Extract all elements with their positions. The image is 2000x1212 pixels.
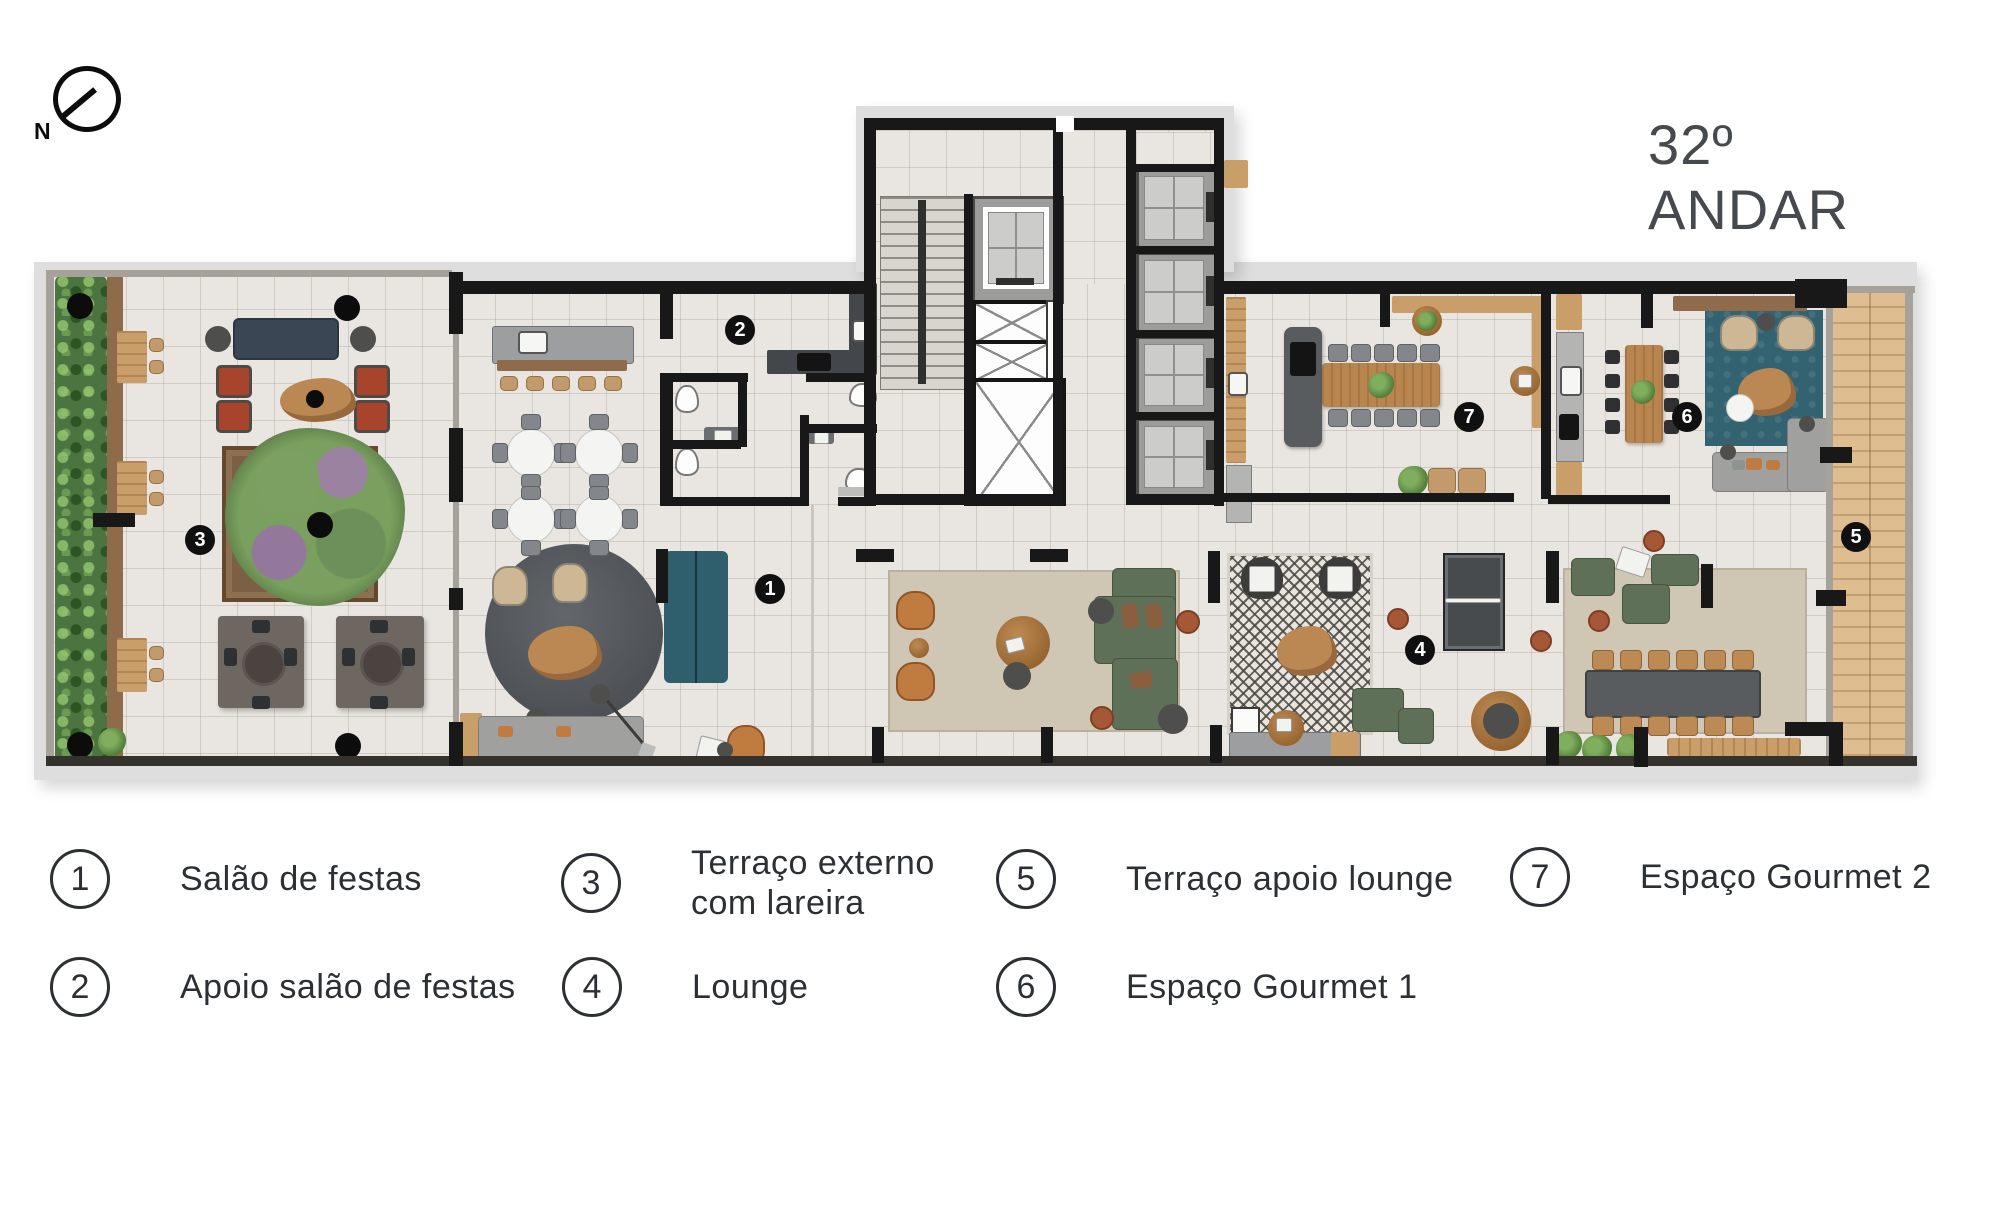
g2-chair-b3 bbox=[1374, 409, 1394, 427]
wall-stub-gourmet1 bbox=[1641, 290, 1653, 328]
g1-cushion-2 bbox=[1766, 460, 1780, 470]
legend-label: Terraço apoio lounge bbox=[1126, 859, 1454, 899]
wall-vestibule-bottom bbox=[1130, 164, 1224, 172]
wall-stub-3 bbox=[872, 727, 884, 763]
plan-marker-lounge: 4 bbox=[1405, 635, 1435, 665]
ld-chair-b4 bbox=[1676, 716, 1698, 736]
wall-bath-top-2 bbox=[806, 373, 876, 382]
g1-side-table bbox=[1757, 313, 1775, 331]
legend-item-lounge: 4 Lounge bbox=[562, 957, 808, 1017]
g1-armchair-1 bbox=[1720, 315, 1758, 351]
shaft-x-big bbox=[972, 378, 1066, 506]
g1-sink bbox=[1560, 366, 1582, 396]
bar-stool-3 bbox=[552, 376, 570, 391]
tower-door-gap bbox=[1056, 116, 1074, 132]
terrace-pouf-1 bbox=[205, 326, 231, 352]
lounge-green-bench-1 bbox=[1352, 688, 1404, 732]
chevron-coffee-table bbox=[1277, 626, 1337, 676]
g1-white-table bbox=[1726, 394, 1754, 422]
wall-bath-h3 bbox=[803, 424, 877, 433]
lounge-pouf-terra-2 bbox=[1090, 706, 1114, 730]
legend-item-terraco-externo: 3 Terraço externo com lareira bbox=[561, 843, 935, 923]
apoio-cooktop bbox=[797, 353, 831, 371]
g2-chair-t4 bbox=[1397, 344, 1417, 362]
pouf-terra-5 bbox=[1588, 610, 1610, 632]
wall-stub-gourmet2 bbox=[1380, 289, 1390, 327]
lounge-pouf-dark-2 bbox=[1158, 704, 1188, 734]
wall-deck-corner-2 bbox=[1829, 722, 1843, 766]
wall-stub-8 bbox=[1546, 727, 1559, 765]
legend-number-circle: 3 bbox=[561, 853, 621, 913]
plan-marker-terraco-externo: 3 bbox=[185, 525, 215, 555]
wall-bath-top-1 bbox=[660, 373, 748, 382]
elevator-1-cab bbox=[1144, 176, 1204, 240]
wall-ts-stub-2 bbox=[449, 428, 463, 502]
bar-stool-1 bbox=[500, 376, 518, 391]
wall-deck-mid bbox=[1820, 447, 1852, 463]
ping-pong-net bbox=[1445, 598, 1501, 603]
mat1-chair-n bbox=[252, 620, 270, 633]
legend-number-circle: 1 bbox=[50, 849, 110, 909]
elevator-2-door bbox=[1206, 276, 1214, 306]
g1-cooktop bbox=[1559, 414, 1579, 440]
wall-gourmet1-bottom bbox=[1548, 495, 1670, 504]
ld-chair-b3 bbox=[1648, 716, 1670, 736]
g2-stool-2 bbox=[1458, 468, 1486, 494]
wall-tower-right bbox=[1214, 118, 1224, 506]
wall-tower-top-left bbox=[864, 118, 1056, 130]
wall-stub-5 bbox=[1208, 551, 1220, 603]
wall-ts-stub-4 bbox=[449, 722, 463, 766]
elevator-4-door bbox=[1206, 440, 1214, 470]
wall-stair-bottom bbox=[864, 494, 1063, 505]
plan-marker-terraco-apoio: 5 bbox=[1841, 522, 1871, 552]
stair-rail bbox=[918, 200, 926, 384]
terrace-firepit-dot bbox=[306, 390, 324, 408]
floor-lamp-head bbox=[590, 684, 610, 704]
terrace-armchair-1 bbox=[216, 365, 252, 398]
floor-joint-line bbox=[811, 505, 814, 758]
ld-chair-t3 bbox=[1648, 650, 1670, 670]
ld-chair-t6 bbox=[1732, 650, 1754, 670]
g2-round-note bbox=[1518, 374, 1532, 388]
bar-wood-front bbox=[497, 360, 627, 371]
g2-chair-t3 bbox=[1374, 344, 1394, 362]
mat1-chair-w bbox=[224, 648, 237, 666]
wall-elev-sep-2 bbox=[1130, 330, 1224, 338]
sideboard-wood bbox=[1331, 732, 1359, 758]
mat1-chair-s bbox=[252, 696, 270, 709]
floorplan-page: N 32º ANDAR 1 2 3 4 5 6 7 1 Salão de fes… bbox=[0, 0, 2000, 1212]
wall-elev-bottom bbox=[1126, 494, 1224, 505]
wall-apoio-divider bbox=[660, 281, 673, 339]
bt4-chair-w bbox=[560, 509, 576, 529]
mat2-chair-s bbox=[370, 696, 388, 709]
tree-trunk bbox=[307, 512, 333, 538]
legend-item-terraco-apoio: 5 Terraço apoio lounge bbox=[996, 849, 1454, 909]
toilet-2 bbox=[675, 448, 699, 476]
bt3-chair-s bbox=[521, 540, 541, 556]
g2-chair-b5 bbox=[1420, 409, 1440, 427]
bar-stool-2 bbox=[526, 376, 544, 391]
elevator-4-cab bbox=[1144, 426, 1204, 488]
terrace-bench-1 bbox=[117, 331, 147, 383]
mat1-table bbox=[242, 642, 286, 686]
wall-gourmet2-bottom bbox=[1224, 493, 1514, 502]
wall-stub-daybed bbox=[656, 549, 668, 603]
bt1-chair-n bbox=[521, 414, 541, 430]
bt4-chair-e bbox=[622, 509, 638, 529]
bt4-chair-n bbox=[589, 486, 609, 500]
plan-marker-salao-de-festas: 1 bbox=[755, 574, 785, 604]
g1-chair-l1 bbox=[1605, 350, 1620, 364]
wall-elev-sep-3 bbox=[1130, 412, 1224, 420]
green-pouf-1 bbox=[1571, 558, 1615, 596]
g1-chair-l2 bbox=[1605, 374, 1620, 388]
bath-mat bbox=[838, 487, 866, 496]
edge-deck-left bbox=[1826, 288, 1833, 764]
elevator-1-door bbox=[1206, 192, 1214, 222]
toilet-1 bbox=[675, 385, 699, 413]
legend-item-espaco-gourmet-1: 6 Espaço Gourmet 1 bbox=[996, 957, 1417, 1017]
lounge-cushion-2 bbox=[1144, 603, 1163, 629]
wall-bath-h2 bbox=[663, 440, 741, 449]
duct-box bbox=[1224, 160, 1248, 188]
legend-label: Salão de festas bbox=[180, 859, 422, 899]
pouf-terra-4 bbox=[1643, 530, 1665, 552]
wicker-cushion-2 bbox=[1327, 566, 1353, 592]
wall-stub-2 bbox=[1030, 549, 1068, 562]
rug-armchair-1 bbox=[492, 566, 528, 606]
legend-number-circle: 6 bbox=[996, 957, 1056, 1017]
sofa-pillow-1 bbox=[498, 726, 513, 737]
round-dining-table bbox=[1483, 703, 1519, 739]
terrace-sofa bbox=[233, 318, 339, 360]
lounge-pouf-terra-3 bbox=[1387, 608, 1409, 630]
ld-chair-t5 bbox=[1704, 650, 1726, 670]
terrace-pouf-2 bbox=[350, 326, 376, 352]
elevator-3-cab bbox=[1144, 344, 1204, 406]
sofa-pillow-2 bbox=[556, 726, 571, 737]
terrace-column-1 bbox=[67, 293, 93, 319]
ld-chair-b1 bbox=[1592, 716, 1614, 736]
lounge-cushion-1 bbox=[1120, 603, 1139, 629]
legend-number-circle: 4 bbox=[562, 957, 622, 1017]
bt2-chair-n bbox=[589, 414, 609, 430]
wall-stub-4 bbox=[1041, 727, 1053, 763]
wall-bath-bottom-2 bbox=[838, 497, 876, 506]
wall-tower-left bbox=[864, 118, 876, 506]
legend-number-circle: 2 bbox=[50, 957, 110, 1017]
bar-sink bbox=[518, 331, 548, 354]
g2-counter-sink bbox=[1228, 372, 1248, 396]
terrace-bench-2 bbox=[117, 461, 147, 515]
lounge-cushion-3 bbox=[1129, 671, 1153, 690]
legend-label: Espaço Gourmet 2 bbox=[1640, 857, 1931, 897]
lounge-green-bench-2 bbox=[1398, 708, 1434, 744]
elevator-2-cab bbox=[1144, 260, 1204, 324]
ld-chair-t1 bbox=[1592, 650, 1614, 670]
bt3-chair-w bbox=[492, 509, 508, 529]
g1-armchair-2 bbox=[1777, 315, 1815, 351]
g1-pouf-2 bbox=[1799, 416, 1815, 432]
legend-label: Lounge bbox=[692, 967, 808, 1007]
wall-elev-sep-1 bbox=[1130, 246, 1224, 254]
bar-stool-4 bbox=[578, 376, 596, 391]
terrace-stool-3a bbox=[149, 646, 164, 660]
edge-deck-right bbox=[1905, 286, 1913, 766]
wall-stub-10 bbox=[1701, 564, 1713, 608]
wicker-cushion-1 bbox=[1249, 566, 1275, 592]
bar-counter bbox=[492, 326, 634, 364]
bt4-chair-s bbox=[589, 540, 609, 556]
wall-tower-top-right bbox=[1074, 118, 1224, 130]
wall-ts-stub-1 bbox=[449, 272, 463, 334]
g1-cushion-3 bbox=[1732, 460, 1745, 470]
pouf-terra-6 bbox=[1530, 630, 1552, 652]
ld-chair-b5 bbox=[1704, 716, 1726, 736]
lounge-dining-table bbox=[1585, 670, 1761, 718]
g2-cooktop bbox=[1290, 342, 1316, 376]
edge-terrace-top bbox=[52, 270, 452, 277]
mat2-chair-n bbox=[370, 620, 388, 633]
wall-deck-low bbox=[1816, 590, 1846, 606]
legend-label: Terraço externo com lareira bbox=[691, 843, 935, 923]
terrace-armchair-4 bbox=[354, 400, 390, 433]
g2-chair-b2 bbox=[1351, 409, 1371, 427]
bt3-chair-n bbox=[521, 486, 541, 500]
wall-hedge-stub bbox=[93, 513, 135, 527]
green-pouf-3 bbox=[1622, 584, 1670, 624]
plan-marker-espaco-gourmet-1: 6 bbox=[1672, 402, 1702, 432]
wall-shaft-right bbox=[1053, 130, 1063, 506]
g2-chair-t2 bbox=[1351, 344, 1371, 362]
lounge-pouf-dark-1 bbox=[1088, 598, 1114, 624]
rug-coffee-table bbox=[528, 626, 602, 680]
g1-cushion-1 bbox=[1746, 458, 1762, 470]
bistro-table-3 bbox=[507, 495, 555, 543]
wall-bath-bottom-1 bbox=[663, 497, 809, 506]
terrace-armchair-3 bbox=[354, 365, 390, 398]
g2-chair-t1 bbox=[1328, 344, 1348, 362]
ld-chair-b6 bbox=[1732, 716, 1754, 736]
terrace-stool-2a bbox=[149, 470, 164, 484]
legend-label: Espaço Gourmet 1 bbox=[1126, 967, 1417, 1007]
mat1-chair-e bbox=[284, 648, 297, 666]
wall-bath-v1 bbox=[738, 373, 747, 447]
lounge-pouf-terra-1 bbox=[1176, 610, 1200, 634]
rug-armchair-2 bbox=[552, 563, 588, 603]
chevron-note bbox=[1276, 718, 1292, 732]
lounge-slat-bench bbox=[1667, 738, 1801, 756]
g2-chair-b1 bbox=[1328, 409, 1348, 427]
g2-chair-b4 bbox=[1397, 409, 1417, 427]
g2-chair-t5 bbox=[1420, 344, 1440, 362]
g1-cabinet-bottom bbox=[1556, 462, 1582, 496]
wall-ts-stub-3 bbox=[449, 588, 463, 610]
bt1-chair-w bbox=[492, 443, 508, 463]
legend-number-circle: 5 bbox=[996, 849, 1056, 909]
wall-stub-1 bbox=[856, 549, 894, 562]
service-elevator-door bbox=[996, 278, 1034, 285]
bar-stool-5 bbox=[604, 376, 622, 391]
lounge-armchair-1 bbox=[896, 591, 935, 630]
g1-chair-l3 bbox=[1605, 398, 1620, 412]
ld-chair-t4 bbox=[1676, 650, 1698, 670]
mat2-chair-w bbox=[342, 648, 355, 666]
ld-chair-t2 bbox=[1620, 650, 1642, 670]
terrace-stool-1b bbox=[149, 360, 164, 374]
terrace-column-3 bbox=[67, 732, 93, 758]
g1-pouf-1 bbox=[1720, 444, 1736, 460]
bistro-table-2 bbox=[575, 429, 623, 477]
legend-item-salao-de-festas: 1 Salão de festas bbox=[50, 849, 422, 909]
legend-item-apoio-salao: 2 Apoio salão de festas bbox=[50, 957, 516, 1017]
terrace-stool-1a bbox=[149, 338, 164, 352]
g1-chair-r2 bbox=[1664, 374, 1679, 388]
bistro-table-1 bbox=[507, 429, 555, 477]
elevator-3-door bbox=[1206, 358, 1214, 388]
bt2-chair-e bbox=[622, 443, 638, 463]
lounge-armchair-2 bbox=[896, 662, 935, 701]
wall-gourmet2-right bbox=[1541, 281, 1551, 499]
g1-chair-r1 bbox=[1664, 350, 1679, 364]
wall-deck-block bbox=[1795, 279, 1847, 308]
legend-number-circle: 7 bbox=[1510, 847, 1570, 907]
service-elevator-cab bbox=[988, 212, 1044, 284]
wall-right-top bbox=[1224, 281, 1828, 294]
floor-plan: 1 2 3 4 5 6 7 bbox=[0, 0, 2000, 1212]
bath-sink-2b bbox=[814, 432, 829, 444]
edge-terrace-left bbox=[46, 270, 54, 766]
g1-cabinet-top bbox=[1556, 294, 1582, 330]
wall-stub-9 bbox=[1634, 727, 1648, 767]
wall-stub-7 bbox=[1546, 551, 1559, 603]
daybed bbox=[664, 551, 728, 683]
elevator-vestibule bbox=[1136, 132, 1214, 164]
g1-counter bbox=[1556, 332, 1584, 462]
wall-elev-left bbox=[1126, 130, 1136, 494]
lounge-side-table bbox=[909, 638, 929, 658]
plan-marker-apoio-salao: 2 bbox=[725, 315, 755, 345]
floor-deck bbox=[1829, 290, 1911, 764]
wall-stair-divider bbox=[964, 194, 973, 506]
terrace-stool-2b bbox=[149, 492, 164, 506]
lounge-coffee-small bbox=[1003, 662, 1031, 690]
plan-marker-espaco-gourmet-2: 7 bbox=[1454, 402, 1484, 432]
g1-console bbox=[1673, 296, 1807, 311]
terrace-bench-3 bbox=[117, 638, 147, 692]
terrace-stool-3b bbox=[149, 668, 164, 682]
g2-stool-1 bbox=[1428, 468, 1456, 494]
legend-label: Apoio salão de festas bbox=[180, 967, 516, 1007]
mat2-table bbox=[360, 642, 404, 686]
green-pouf-2 bbox=[1651, 554, 1699, 586]
terrace-armchair-2 bbox=[216, 400, 252, 433]
g1-chair-l4 bbox=[1605, 420, 1620, 434]
legend-item-espaco-gourmet-2: 7 Espaço Gourmet 2 bbox=[1510, 847, 1931, 907]
bt2-chair-w bbox=[560, 443, 576, 463]
edge-terrace-salao bbox=[453, 272, 459, 764]
terrace-column-2 bbox=[334, 295, 360, 321]
mat2-chair-e bbox=[402, 648, 415, 666]
bistro-table-4 bbox=[575, 495, 623, 543]
wall-stub-6 bbox=[1210, 725, 1222, 763]
